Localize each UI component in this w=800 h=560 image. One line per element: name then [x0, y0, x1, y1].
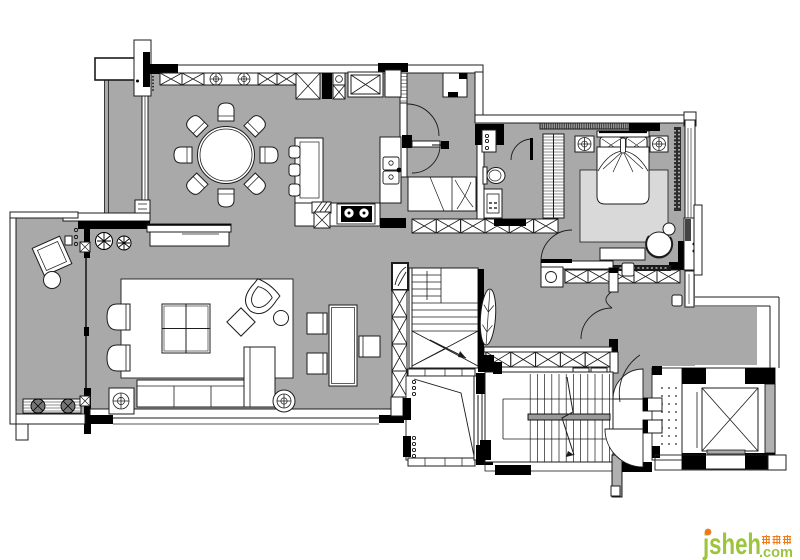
svg-text:.com: .com: [759, 544, 793, 560]
